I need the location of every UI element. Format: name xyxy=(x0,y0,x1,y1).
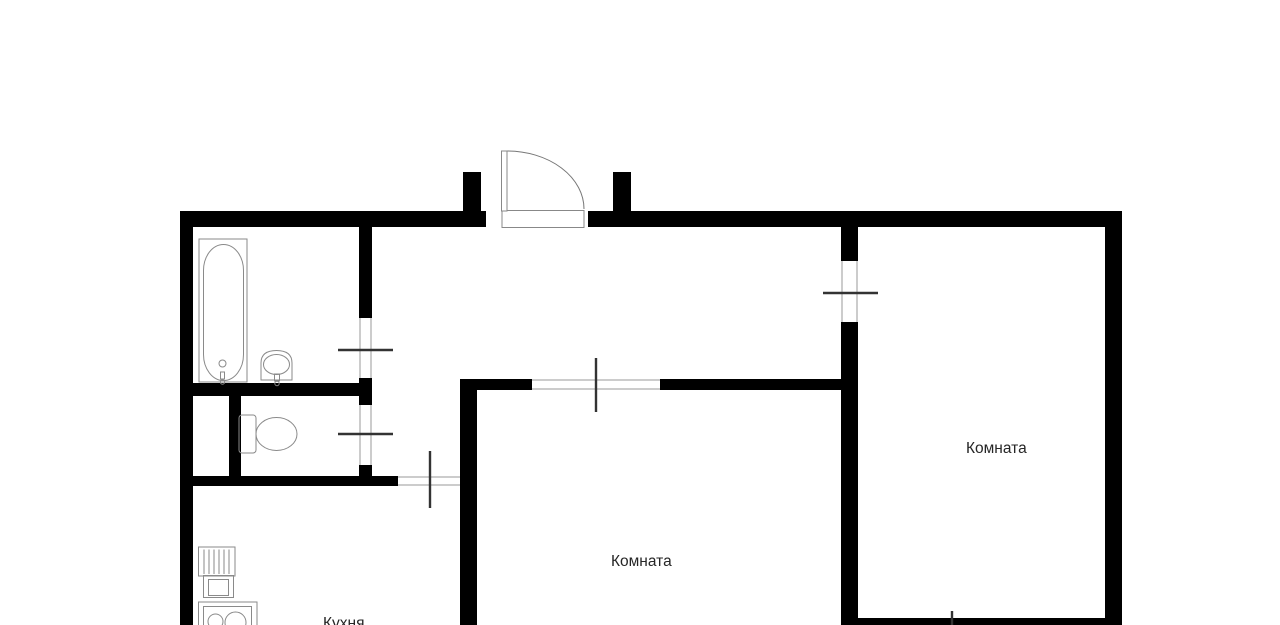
stove-burner xyxy=(225,612,246,625)
right-room-wall-lower xyxy=(841,322,858,625)
stove-icon xyxy=(199,602,258,625)
kitchen-counter-icon xyxy=(199,547,236,576)
hall-wall-b xyxy=(660,379,858,390)
entrance-threshold xyxy=(502,211,584,228)
entrance-stub-left xyxy=(463,172,481,211)
kitchen-sink-inner xyxy=(209,580,229,596)
kitchen-top-wall xyxy=(193,476,398,486)
entrance-door-swing-arc xyxy=(507,151,584,209)
right-room-label: Комната xyxy=(966,440,1027,457)
toilet-tank xyxy=(239,415,256,453)
entrance-stub-right xyxy=(613,172,631,211)
door-opening-jambs xyxy=(360,261,857,485)
bathroom-divider-wall xyxy=(193,383,372,396)
kitchen-label: Кухня xyxy=(323,615,364,625)
bottom-wall-right xyxy=(858,618,1105,625)
stove-outer xyxy=(199,602,258,625)
wall-top-right xyxy=(588,211,1122,227)
entrance-door-icon xyxy=(502,151,585,228)
stove-burner xyxy=(208,614,223,625)
bathtub-icon xyxy=(199,239,247,384)
entrance-door-leaf xyxy=(502,151,508,211)
bathtub-drain xyxy=(219,360,226,367)
kitchen-sink-icon xyxy=(204,576,234,598)
washbasin-icon xyxy=(261,351,292,386)
toilet-bowl xyxy=(256,418,297,451)
floorplan: Кухня Комната Комната xyxy=(0,0,1280,625)
bathtub-tap xyxy=(221,372,225,379)
wall-top-left xyxy=(180,211,486,227)
bath-wall-upper xyxy=(359,227,372,318)
wall-outer-left xyxy=(180,211,193,625)
opening-ticks xyxy=(338,293,952,625)
floorplan-canvas: Кухня Комната Комната xyxy=(0,0,1280,625)
wall-outer-right xyxy=(1105,211,1122,625)
toilet-icon xyxy=(239,415,297,453)
bathtub-surround xyxy=(199,239,247,382)
hall-wall-a xyxy=(460,379,532,390)
center-room-label: Комната xyxy=(611,553,672,570)
center-room-left-wall xyxy=(460,379,477,625)
washbasin-bowl xyxy=(264,355,290,375)
right-room-wall-upper xyxy=(841,227,858,261)
